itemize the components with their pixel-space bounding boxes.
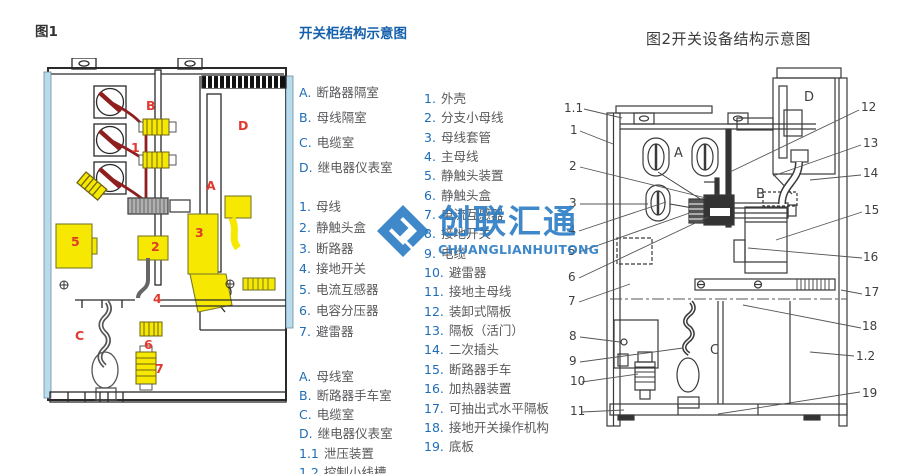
figure2-callout-16: 16	[863, 251, 878, 263]
legend-item-label: 接地开关	[316, 261, 366, 276]
legend-item: 19.底板	[424, 436, 566, 455]
figure2-callout-19: 19	[862, 387, 877, 399]
legend-item-key: 2.	[299, 220, 311, 235]
legend-item-label: 母线隔室	[317, 110, 367, 125]
figure2-title: 图2开关设备结构示意图	[646, 28, 811, 49]
legend-item: 7.电流互感器	[424, 204, 566, 223]
legend-item-label: 泄压装置	[324, 446, 374, 461]
legend-item-label: 避雷器	[316, 324, 354, 339]
legend-item-key: C.	[299, 135, 312, 150]
legend-item: 5.静触头装置	[424, 165, 566, 184]
legend-item-label: 继电器仪表室	[318, 160, 393, 175]
figure2-callout-12: 12	[861, 101, 876, 113]
figure1-label-B: B	[146, 100, 156, 112]
legend-item: 15.断路器手车	[424, 359, 566, 378]
legend-item-key: D.	[299, 160, 313, 175]
legend-panel-2: 1.外壳2.分支小母线3.母线套管4.主母线5.静触头装置6.静触头盒7.电流互…	[424, 88, 566, 456]
legend-item-label: 电流互感器	[316, 282, 379, 297]
legend-item-label: 断路器隔室	[316, 85, 379, 100]
legend-item-label: 控制小线槽	[324, 465, 387, 474]
legend-item-key: 1.2	[299, 465, 319, 474]
legend-item: 4.主母线	[424, 146, 566, 165]
figure1-label-1: 1	[131, 142, 140, 154]
legend-item-label: 母线室	[316, 369, 354, 384]
figure1-labels: B1DA5234C67	[40, 58, 298, 412]
legend-item-key: C.	[299, 407, 312, 422]
legend-item-key: B.	[299, 110, 312, 125]
legend-item-key: 14.	[424, 342, 444, 357]
legend-item-key: 1.	[299, 199, 311, 214]
figure2-callout-4: 4	[568, 224, 576, 236]
legend-item-key: 15.	[424, 362, 444, 377]
legend-item-label: 避雷器	[449, 265, 487, 280]
legend-item-label: 可抽出式水平隔板	[449, 401, 549, 416]
legend-item-key: A.	[299, 369, 311, 384]
legend-item-label: 电缆	[441, 246, 466, 261]
legend-title: 开关柜结构示意图	[299, 22, 429, 42]
legend-item: C.电缆室	[299, 132, 429, 157]
legend-item-label: 底板	[449, 439, 474, 454]
legend-item-key: 17.	[424, 401, 444, 416]
legend-item-label: 主母线	[441, 149, 479, 164]
legend-item-label: 二次插头	[449, 342, 499, 357]
figure2-callout-11: 11	[570, 405, 585, 417]
legend-item-label: 静触头装置	[441, 168, 504, 183]
figure2-callouts: 1.11234567891011121314151617181.219	[558, 52, 900, 442]
figure2-callout-17: 17	[864, 286, 879, 298]
legend-item-key: 8.	[424, 226, 436, 241]
legend-item-label: 接地主母线	[449, 284, 512, 299]
legend-item-key: 7.	[299, 324, 311, 339]
numbered-parts-list: 1.外壳2.分支小母线3.母线套管4.主母线5.静触头装置6.静触头盒7.电流互…	[424, 88, 566, 456]
legend-item-label: 断路器手车	[449, 362, 512, 377]
figure2-callout-6: 6	[568, 271, 576, 283]
legend-item-key: D.	[299, 426, 313, 441]
legend-item-key: 11.	[424, 284, 444, 299]
figure2-callout-5: 5	[568, 245, 576, 257]
legend-item-label: 接地开关	[441, 226, 491, 241]
legend-item: 11.接地主母线	[424, 281, 566, 300]
legend-item: 10.避雷器	[424, 262, 566, 281]
legend-item-label: 电容分压器	[316, 303, 379, 318]
legend-item-key: 1.	[424, 91, 436, 106]
legend-item-key: 1.1	[299, 446, 319, 461]
figure1-caption: 图1	[35, 20, 58, 40]
legend-item-label: 外壳	[441, 91, 466, 106]
figure2-callout-1: 1	[570, 124, 578, 136]
legend-item: 18.接地开关操作机构	[424, 417, 566, 436]
legend-item: 12.装卸式隔板	[424, 301, 566, 320]
legend-item-key: 3.	[299, 241, 311, 256]
figure2: ABCD 1.11234567891011121314151617181.219	[558, 52, 900, 442]
legend-item-label: 电缆室	[317, 135, 355, 150]
figure2-callout-10: 10	[570, 375, 585, 387]
legend-item: 16.加热器装置	[424, 378, 566, 397]
legend-item: 7.避雷器	[299, 321, 429, 342]
legend-item: 2.分支小母线	[424, 107, 566, 126]
legend-item-key: 5.	[424, 168, 436, 183]
legend-item-label: 电流互感器	[441, 207, 504, 222]
legend-item: B.母线隔室	[299, 107, 429, 132]
legend-item-key: 6.	[299, 303, 311, 318]
legend-item-label: 静触头盒	[441, 188, 491, 203]
legend-item: D.继电器仪表室	[299, 423, 429, 442]
figure2-callout-2: 2	[569, 160, 577, 172]
legend-item: 8.接地开关	[424, 223, 566, 242]
legend-item: C.电缆室	[299, 404, 429, 423]
figure1-label-A: A	[206, 180, 216, 192]
legend-item: 1.2控制小线槽	[299, 462, 429, 474]
legend-item-key: 9.	[424, 246, 436, 261]
figure1-label-2: 2	[151, 241, 160, 253]
legend-item-label: 静触头盒	[316, 220, 366, 235]
figure2-callout-18: 18	[862, 320, 877, 332]
legend-item: A.断路器隔室	[299, 82, 429, 107]
legend-item-key: 7.	[424, 207, 436, 222]
figure1-label-C: C	[75, 330, 84, 342]
legend-item-label: 装卸式隔板	[449, 304, 512, 319]
figure1-label-3: 3	[195, 227, 204, 239]
legend-item: B.断路器手车室	[299, 385, 429, 404]
legend-item-key: A.	[299, 85, 311, 100]
parts-list: 1.母线2.静触头盒3.断路器4.接地开关5.电流互感器6.电容分压器7.避雷器	[299, 196, 429, 342]
legend-item: 3.断路器	[299, 238, 429, 259]
legend-item-label: 断路器手车室	[317, 388, 392, 403]
page: 图1	[0, 0, 900, 474]
legend-item-label: 电缆室	[317, 407, 355, 422]
legend-item-label: 接地开关操作机构	[449, 420, 549, 435]
legend-item-label: 继电器仪表室	[318, 426, 393, 441]
legend-item-key: B.	[299, 388, 312, 403]
legend-item: 2.静触头盒	[299, 217, 429, 238]
legend-item-key: 3.	[424, 130, 436, 145]
legend-item-key: 10.	[424, 265, 444, 280]
figure1-label-4: 4	[153, 293, 162, 305]
figure1-label-7: 7	[155, 363, 164, 375]
legend-item: 1.外壳	[424, 88, 566, 107]
legend-item-key: 18.	[424, 420, 444, 435]
legend-item: 6.静触头盒	[424, 185, 566, 204]
legend-item: 1.母线	[299, 196, 429, 217]
legend-item-key: 4.	[424, 149, 436, 164]
legend-item: 6.电容分压器	[299, 300, 429, 321]
figure2-callout-13: 13	[863, 137, 878, 149]
legend-item: 4.接地开关	[299, 258, 429, 279]
legend-item-key: 12.	[424, 304, 444, 319]
compartment-list: A.断路器隔室B.母线隔室C.电缆室D.继电器仪表室	[299, 82, 429, 182]
figure1-label-5: 5	[71, 236, 80, 248]
figure2-callout-9: 9	[569, 355, 577, 367]
figure2-callout-8: 8	[569, 330, 577, 342]
legend-item: 1.1泄压装置	[299, 443, 429, 462]
legend-item-key: 16.	[424, 381, 444, 396]
legend-item: A.母线室	[299, 366, 429, 385]
figure2-callout-7: 7	[568, 295, 576, 307]
legend-item: 17.可抽出式水平隔板	[424, 398, 566, 417]
legend-item-label: 加热器装置	[449, 381, 512, 396]
legend-item-key: 2.	[424, 110, 436, 125]
legend-item: 13.隔板（活门）	[424, 320, 566, 339]
figure2-callout-1.1: 1.1	[564, 102, 583, 114]
figure1-label-6: 6	[144, 339, 153, 351]
figure1-label-D: D	[238, 120, 248, 132]
figure2-callout-3: 3	[569, 197, 577, 209]
legend-item-label: 断路器	[316, 241, 354, 256]
figure2-callout-14: 14	[863, 167, 878, 179]
legend-item-key: 19.	[424, 439, 444, 454]
figure2-callout-1.2: 1.2	[856, 350, 875, 362]
legend-item: 3.母线套管	[424, 127, 566, 146]
legend-item: 5.电流互感器	[299, 279, 429, 300]
figure1: B1DA5234C67	[40, 58, 298, 412]
legend-item: D.继电器仪表室	[299, 157, 429, 182]
legend-item-key: 6.	[424, 188, 436, 203]
legend-item-label: 隔板（活门）	[449, 323, 524, 338]
legend-item-label: 分支小母线	[441, 110, 504, 125]
legend-item-label: 母线	[316, 199, 341, 214]
legend-item-key: 5.	[299, 282, 311, 297]
legend-item-label: 母线套管	[441, 130, 491, 145]
legend-panel: 开关柜结构示意图 A.断路器隔室B.母线隔室C.电缆室D.继电器仪表室 1.母线…	[299, 22, 429, 474]
legend-item: 14.二次插头	[424, 339, 566, 358]
legend-item: 9.电缆	[424, 243, 566, 262]
legend-item-key: 13.	[424, 323, 444, 338]
compartment-list-2: A.母线室B.断路器手车室C.电缆室D.继电器仪表室1.1泄压装置1.2控制小线…	[299, 366, 429, 474]
legend-item-key: 4.	[299, 261, 311, 276]
figure2-callout-15: 15	[864, 204, 879, 216]
